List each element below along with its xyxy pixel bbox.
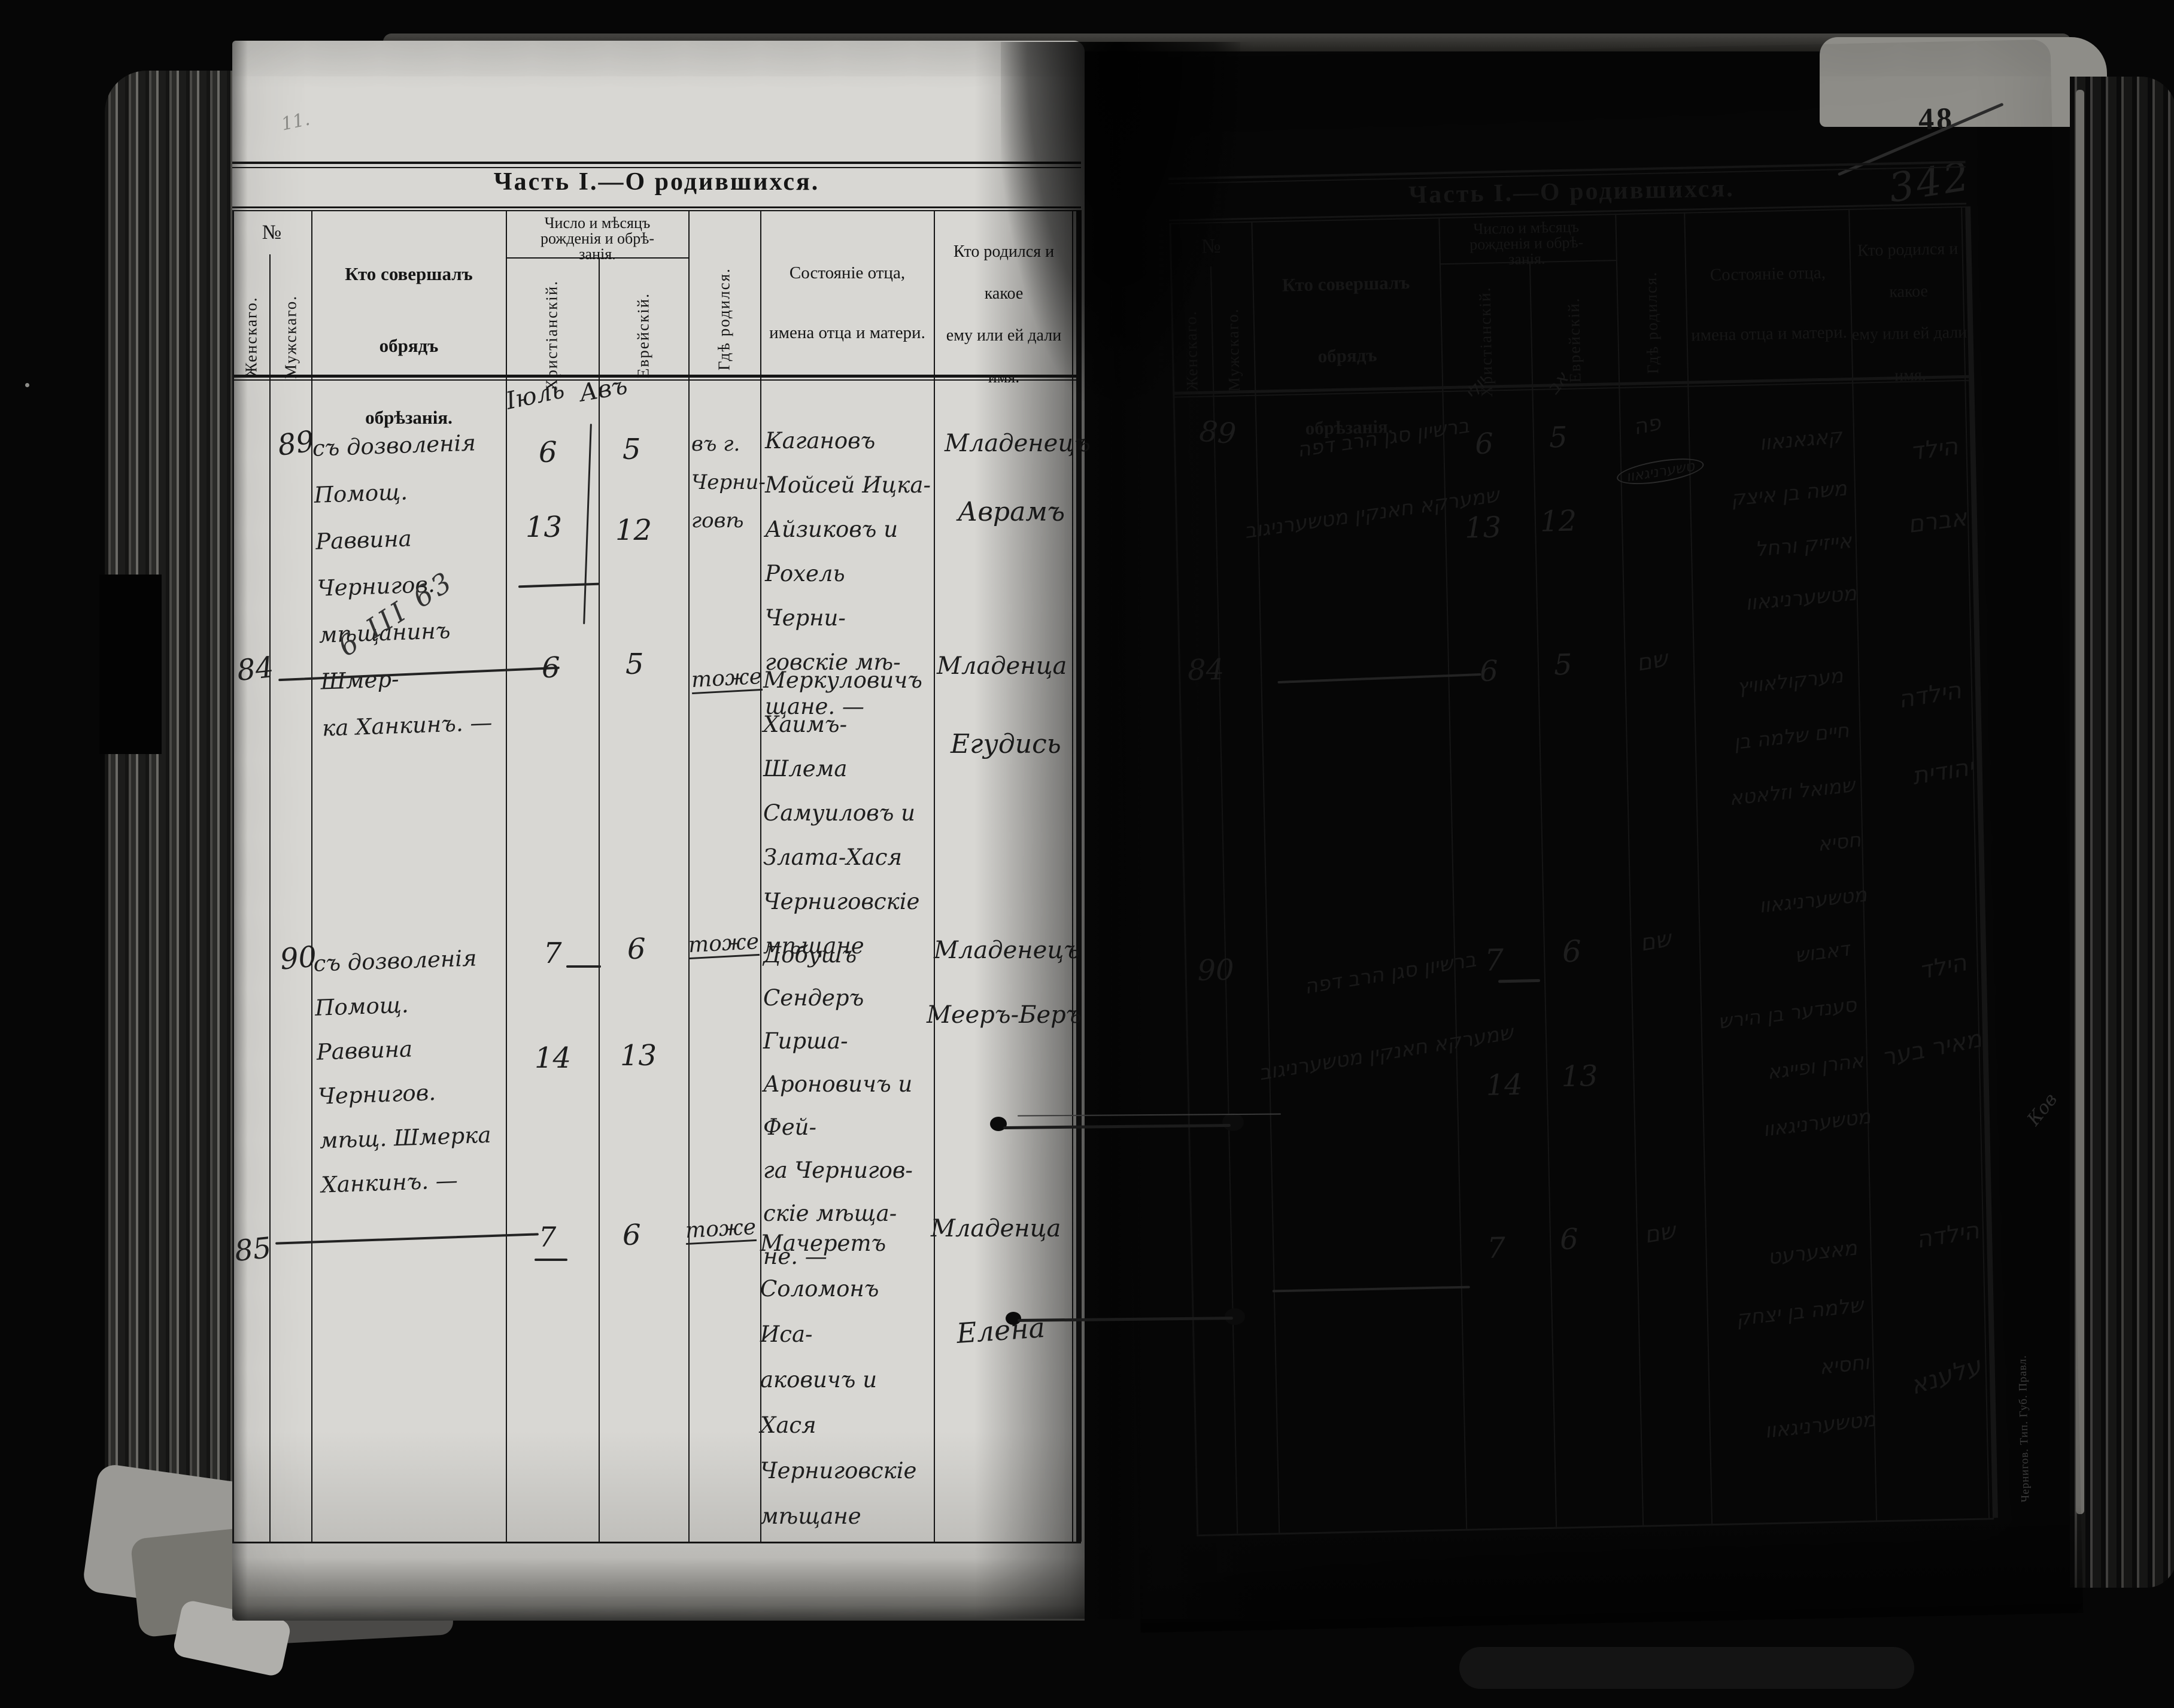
page-title: Часть I.—О родившихся. [444,168,869,196]
col-where-label: Гдѣ родился. [1637,235,1667,409]
entry-84-name-2: Егудись [951,729,1061,759]
month-christian: Іюль [503,376,567,415]
entry-89-circ-chr: 13 [526,510,562,544]
r-entry-89-where-1: פה [1631,411,1663,440]
left-page: 11. Часть I.—О родившихся. № Женскаго. М… [232,41,1085,1621]
r-entry-85-name-2: עלענא [1882,1351,1985,1408]
r-entry-89-officiant-2: שמערקא חאנקין מטשערניגוב [1243,483,1501,543]
col-male-label: Мужскаго. [1219,278,1248,422]
entry-90-birth-chr: 7 [543,937,562,970]
r-entry-89-birth-heb: 5 [1548,421,1568,455]
r-entry-84-father: מערקולאוויץחיים שלמה בןשמואל וזלאטאחסיא … [1686,648,1869,938]
pencil-mark: 11. [280,108,312,135]
r-entry-90-officiant-2: שמערקא חאנקין מטשערניגוב [1257,1020,1515,1085]
entry-84-birth-heb: 5 [626,648,644,681]
r-entry-85-where: שם [1642,1217,1678,1248]
entry-84-number: 84 [235,651,275,688]
r-entry-90-father: דאבושסענדער בן הירשאהרן ופייגאמטשערניגאו… [1693,921,1874,1163]
entry-85-birth-chr: 7 [539,1221,556,1253]
r-entry-89-father: קאגאנאוומשה בן איצקאייזיק ורחלמטשערניגאו… [1686,410,1859,634]
r-entry-89-name: הילדאברם [1854,411,1972,566]
entry-84-birth-chr: 6 [542,651,560,685]
r-entry-89-circ-heb: 12 [1540,505,1577,539]
r-entry-90-circ-heb: 13 [1561,1059,1598,1093]
r-entry-89-number: 89 [1198,415,1238,451]
ink-dash [518,583,599,588]
entry-89-circ-heb: 12 [615,513,652,547]
rule [1072,210,1073,1542]
rule [232,210,1081,211]
rule [506,210,507,1542]
r-entry-84-name: הילדהיהודית [1856,652,1979,822]
rule [1965,206,1998,1518]
entry-84-where: тоже [691,664,763,694]
binding-notch [99,575,162,754]
r-entry-85-name-1: הילדה [1882,1217,1981,1259]
rule [232,1542,1081,1543]
entry-89-name-1: Младенецъ [945,430,1091,457]
margin-scribble: Ков [2023,1089,2061,1130]
page-stack-right [2070,77,2174,1588]
r-entry-90-birth-chr: 7 [1484,943,1504,978]
r-entry-84-birth-chr: 6 [1480,654,1499,688]
r-entry-84-number: 84 [1187,653,1224,687]
entry-85-where: тоже [685,1215,757,1245]
rule [1076,210,1082,1542]
entry-85-name-1: Младенца [931,1215,1061,1242]
entry-89-birth-heb: 5 [623,433,641,466]
entry-85-ditto-dash [275,1233,539,1244]
entry-85-birth-heb: 6 [623,1218,641,1252]
r-entry-89-birth-chr: 6 [1475,427,1494,461]
page-stack-left [105,71,241,1540]
col-name-label: Кто родился и какоеему или ей далиимя. [937,231,1070,399]
entry-89-name-2: Аврамъ [958,497,1065,527]
r-entry-85-ditto-dash [1273,1286,1470,1293]
entry-85-name-2: Елена [955,1311,1046,1350]
r-entry-90-where: שם [1638,925,1674,956]
rule [599,257,600,1542]
col-hebrew-label: Еврейскій. [630,271,657,400]
rule [688,210,690,1542]
rule [1615,214,1644,1525]
entry-90-circ-chr: 14 [535,1041,571,1075]
r-entry-84-ditto-dash [1277,673,1481,683]
rule [232,210,234,1542]
entry-90-name-1: Младенецъ [934,937,1080,964]
rule [934,210,935,1542]
ink-dash [1498,979,1540,983]
rule [1210,266,1238,1534]
rule [269,254,271,1542]
r-entry-84-birth-heb: 5 [1553,648,1572,682]
col-where-label: Гдѣ родился. [711,232,737,406]
rule [1961,206,1990,1518]
r-entry-90-number: 90 [1197,953,1234,987]
entry-90-where: тоже [688,929,760,959]
entry-89-birth-chr: 6 [539,436,557,469]
entry-90-name-2: Мееръ-Беръ [927,1001,1082,1029]
rule [311,210,312,1542]
col-dates-label: Число и мѣсяцърожденія и обрѣ-занія. [508,215,687,262]
col-name-label: Кто родился и какоеему или ей далиимя. [1843,228,1975,398]
col-father-label: Состояніе отца,имена отца и матери. [1686,242,1850,366]
col-no-label: № [1189,235,1233,258]
right-page-bottom-shade [1138,1505,2083,1633]
speck [25,383,29,387]
r-entry-90-officiant-1: ברשיון סגן הרב דפה [1279,948,1478,1003]
col-father-label: Состояніе отца,имена отца и матери. [762,243,933,363]
col-no-label: № [250,221,293,244]
r-entry-89-circ-chr: 13 [1465,510,1502,545]
rule [232,167,1081,168]
rule [232,162,1081,164]
entry-85-father: МачеретъСоломонъ Иса-аковичъ и ХасяЧерни… [760,1221,931,1539]
entry-89-number: 89 [275,424,316,463]
page-edge-highlight [2076,90,2084,1514]
col-female-label: Женскаго. [1177,279,1206,423]
rule [232,206,1081,208]
r-entry-85-father: מאצערעטשלמה בן יצחקוחסיאמטשערניגאוו [1701,1220,1879,1465]
col-female-label: Женскаго. [238,265,265,409]
r-entry-90-circ-chr: 14 [1486,1068,1523,1102]
r-entry-90-birth-heb: 6 [1562,934,1581,970]
ink-underline [535,1259,567,1261]
printer-imprint: Чернигов. Тип. Губ. Правл. [2014,1351,2035,1507]
r-entry-85-birth-heb: 6 [1560,1223,1579,1257]
ink-dash [566,965,601,968]
entry-85-number: 85 [233,1231,273,1268]
r-entry-90-name: הילדמאיר בער [1856,924,1989,1097]
ink-squiggle [583,424,592,624]
entry-90-officiant: съ дозволенія Помощ.Раввина Чернигов.мѣщ… [312,935,519,1207]
speck [1459,1647,1914,1689]
col-male-label: Мужскаго. [278,265,304,409]
r-entry-84-where: שם [1635,645,1670,676]
entry-84-name-1: Младенца [937,652,1067,680]
entry-90-number: 90 [279,940,318,976]
stitch-hole [1222,1113,1244,1131]
r-entry-85-birth-chr: 7 [1487,1231,1506,1265]
scanned-register-spread: 11. Часть I.—О родившихся. № Женскаго. М… [0,0,2174,1708]
entry-90-birth-heb: 6 [627,932,646,966]
entry-84-father: МеркуловичъХаимъ-ШлемаСамуиловъ иЗлата-Х… [763,658,931,968]
right-page: 48 342 Часть I.—О родившихся. № Женскаго… [1108,39,2084,1633]
col-dates-label: Число и мѣсяцърожденія и обрѣ-занія. [1439,218,1614,269]
entry-89-where: въ г.Черни-говѣ [691,425,757,540]
entry-90-circ-heb: 13 [620,1039,657,1072]
